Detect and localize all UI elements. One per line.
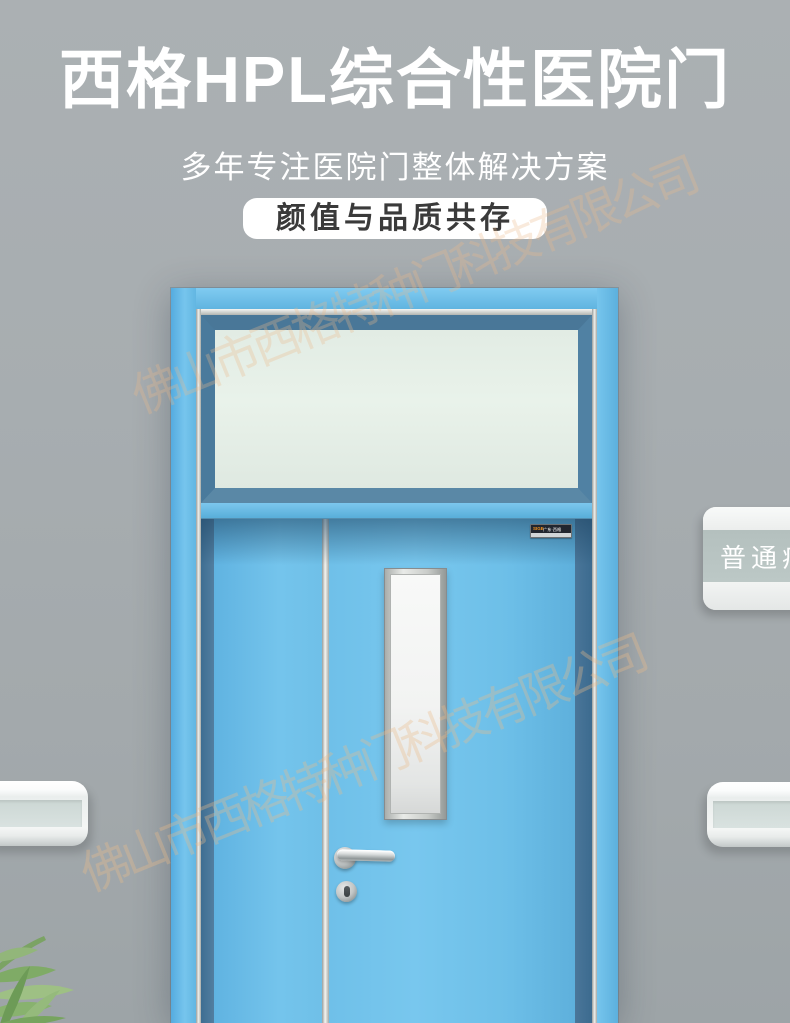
door-leaves: SIGE 广东·西格 西格特种门科技有限公司 <box>201 519 592 1023</box>
door-frame-top-rail <box>171 288 618 309</box>
room-sign: 普通病房 <box>703 507 790 610</box>
keyhole-icon <box>344 886 350 897</box>
door-frame-left-stile <box>171 288 196 1023</box>
vision-panel-window <box>384 568 447 820</box>
meeting-stile-silver <box>322 519 329 1023</box>
room-sign-top-band <box>703 507 790 530</box>
lock-cylinder-escutcheon <box>336 881 357 902</box>
plant-leaves-decoration <box>0 928 124 1023</box>
quality-badge: 颜值与品质共存 <box>243 198 547 239</box>
vision-panel-glass <box>390 574 441 814</box>
frame-silver-trim-right <box>592 309 597 1023</box>
page-subtitle: 多年专注医院门整体解决方案 <box>0 142 790 187</box>
door-reveal-left-shadow <box>201 519 214 1023</box>
brand-logo-name: 广东·西格 <box>543 526 561 532</box>
transom-sill-rail <box>201 503 592 519</box>
wall-guard-rail-right <box>707 782 790 847</box>
door-leaf-narrow <box>214 519 322 1023</box>
wall-guard-rail-left <box>0 781 88 846</box>
hospital-door-assembly: SIGE 广东·西格 西格特种门科技有限公司 <box>171 288 618 1023</box>
brand-logo-subrow: 西格特种门科技有限公司 <box>531 533 571 538</box>
door-handle-lever <box>337 849 395 862</box>
brand-logo-plate: SIGE 广东·西格 西格特种门科技有限公司 <box>530 524 572 538</box>
brand-logo-row: SIGE 广东·西格 <box>531 525 571 533</box>
transom-window <box>201 315 592 503</box>
door-reveal-right-shadow <box>575 519 592 1023</box>
room-sign-label: 普通病房 <box>703 530 790 582</box>
door-leaf-main <box>329 519 575 1023</box>
room-sign-bottom-band <box>703 582 790 610</box>
hospital-door-promo-banner: 西格HPL综合性医院门 多年专注医院门整体解决方案 颜值与品质共存 SIGE <box>0 0 790 1023</box>
door-frame-right-stile <box>597 288 618 1023</box>
page-title: 西格HPL综合性医院门 <box>0 44 790 116</box>
